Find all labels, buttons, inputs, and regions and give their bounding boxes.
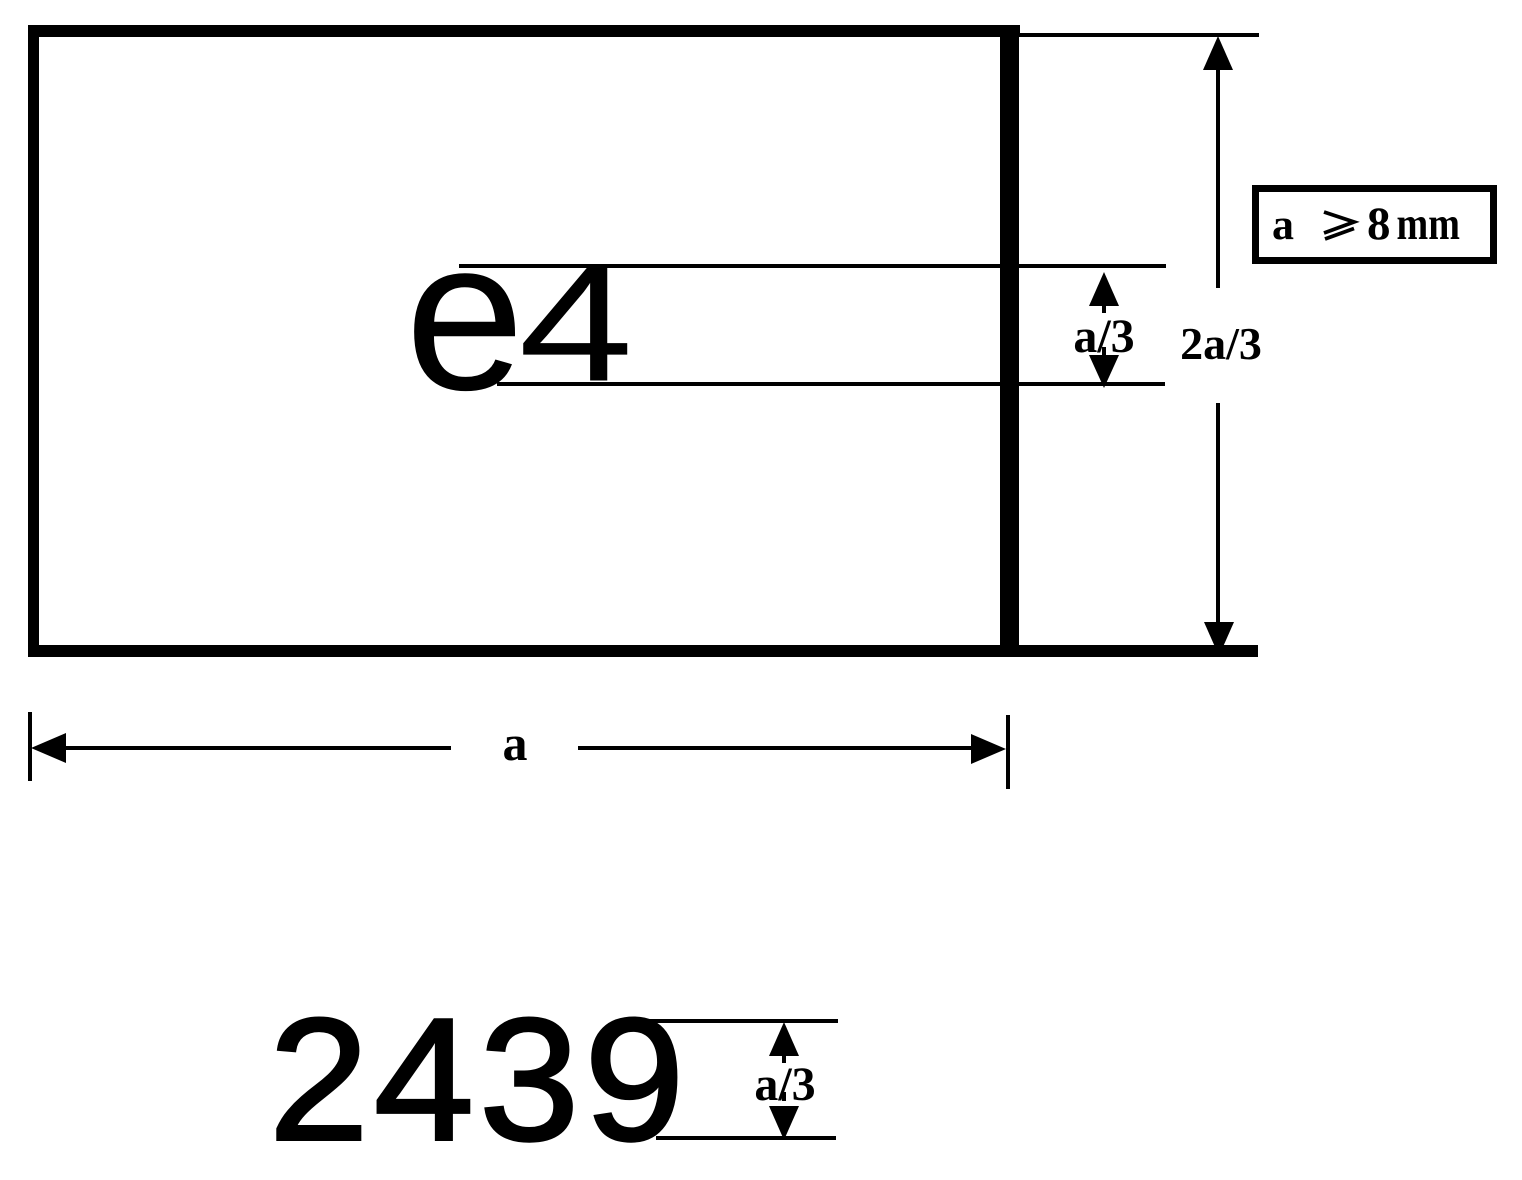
svg-text:2439: 2439	[269, 983, 690, 1177]
svg-text:a/3: a/3	[754, 1058, 815, 1111]
svg-text:a: a	[503, 715, 528, 771]
svg-text:4: 4	[519, 230, 634, 416]
svg-text:a: a	[1272, 200, 1294, 249]
svg-text:2a/3: 2a/3	[1180, 318, 1262, 369]
svg-text:e: e	[405, 194, 525, 435]
svg-text:mm: mm	[1397, 198, 1460, 250]
svg-text:8: 8	[1367, 198, 1391, 250]
